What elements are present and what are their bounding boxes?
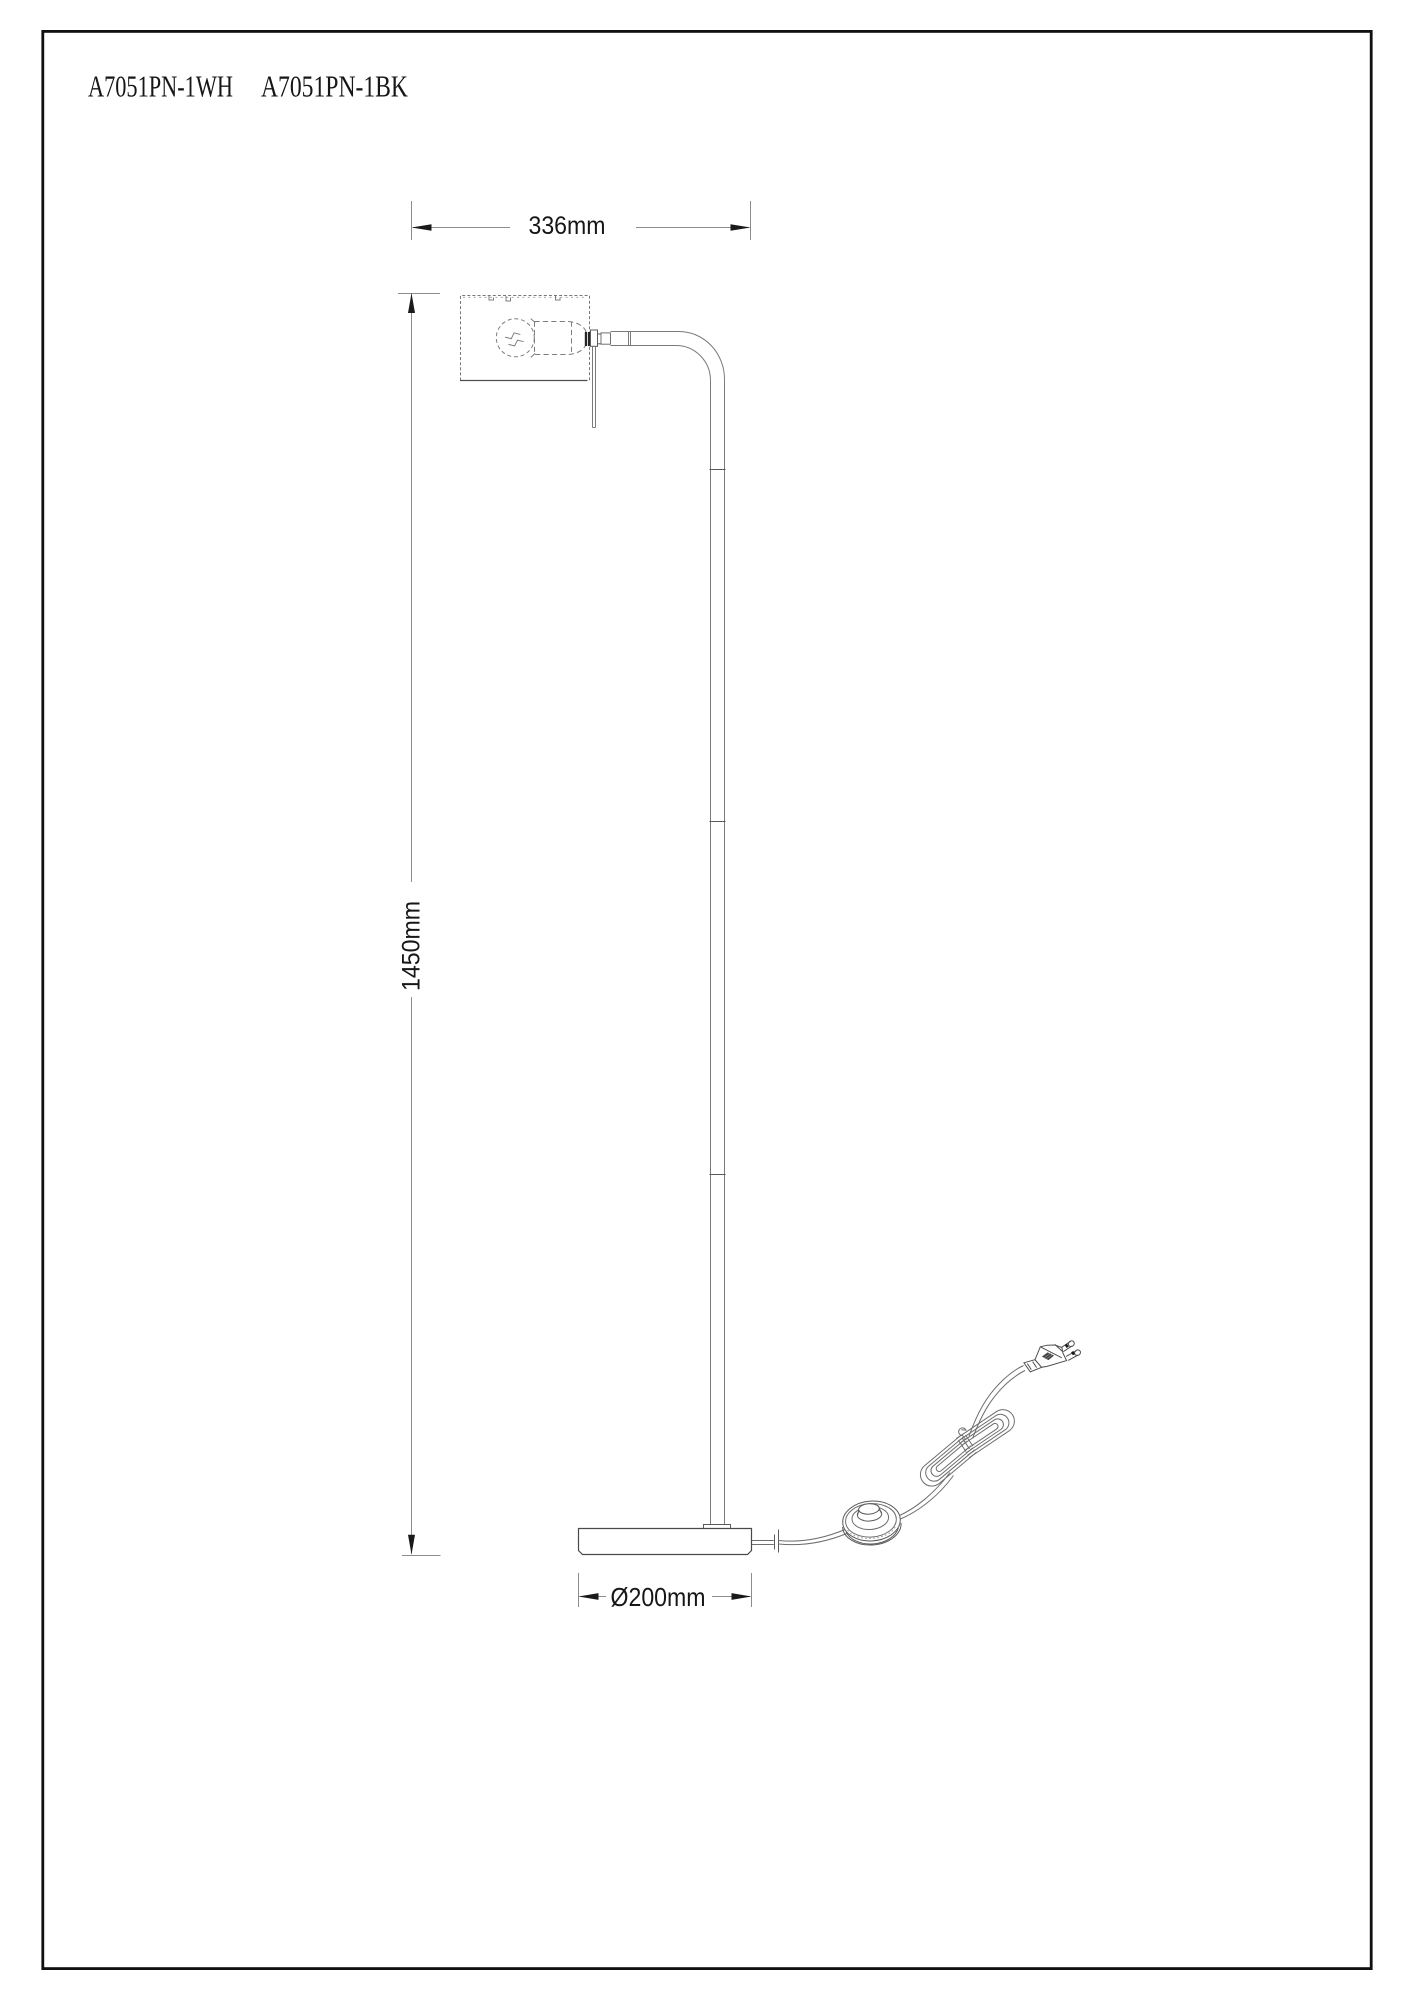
svg-text:A7051PN-1WH: A7051PN-1WH [88, 69, 233, 104]
svg-text:336mm: 336mm [529, 212, 606, 240]
svg-text:Ø200mm: Ø200mm [611, 1582, 706, 1612]
svg-text:1450mm: 1450mm [398, 901, 426, 991]
svg-text:A7051PN-1BK: A7051PN-1BK [261, 69, 408, 104]
